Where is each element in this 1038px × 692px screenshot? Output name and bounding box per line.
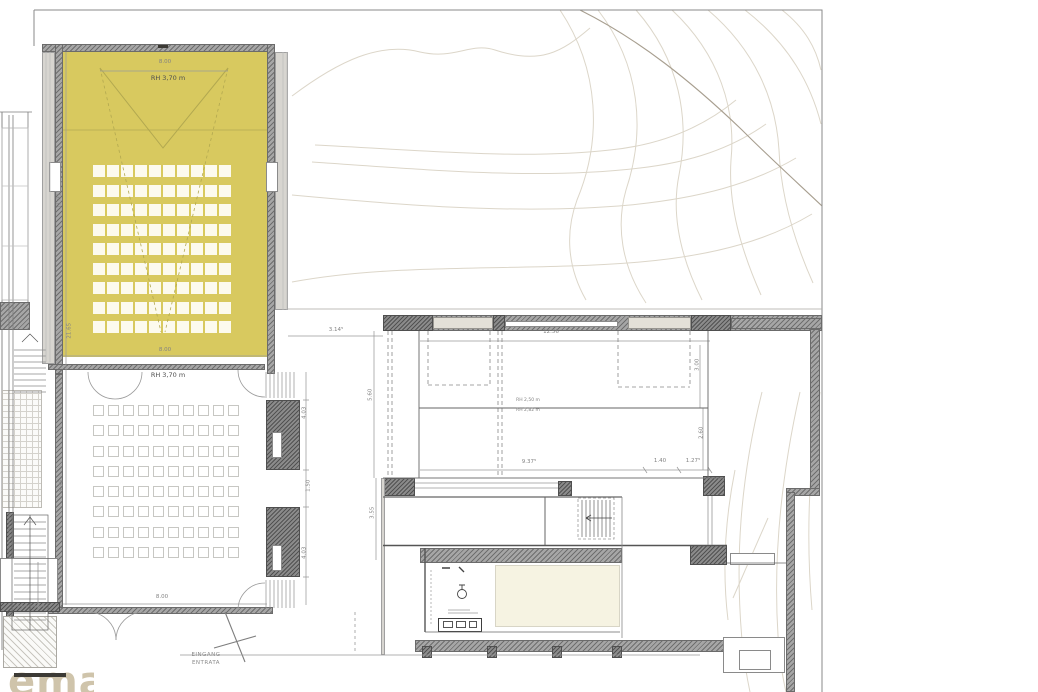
dim-annex-left-top: 3.14⁵ bbox=[322, 328, 350, 334]
seat bbox=[191, 263, 203, 275]
seat bbox=[135, 321, 147, 333]
service-se-block bbox=[690, 545, 727, 565]
seat bbox=[93, 321, 105, 333]
seat bbox=[191, 165, 203, 177]
seat bbox=[153, 405, 164, 416]
rh-annex-line2: RH 2,82 m bbox=[505, 409, 551, 414]
seat bbox=[219, 204, 231, 216]
dim-annex-top: 12.56 bbox=[535, 330, 567, 336]
dim-lower-left: 9.36 bbox=[59, 471, 65, 501]
dim-shaft-mid: 1.50 bbox=[306, 473, 312, 499]
seat bbox=[107, 282, 119, 294]
seat bbox=[121, 263, 133, 275]
seat bbox=[191, 321, 203, 333]
service-room-cream bbox=[495, 565, 620, 627]
seat bbox=[191, 243, 203, 255]
seat bbox=[123, 506, 134, 517]
contour-line-major bbox=[580, 10, 822, 206]
seat bbox=[135, 224, 147, 236]
seat bbox=[168, 506, 179, 517]
seat bbox=[153, 506, 164, 517]
seat bbox=[149, 204, 161, 216]
seat bbox=[219, 165, 231, 177]
left-wing-landing-wall bbox=[0, 302, 30, 330]
seat bbox=[191, 185, 203, 197]
seat bbox=[107, 204, 119, 216]
seat bbox=[219, 321, 231, 333]
seat bbox=[177, 243, 189, 255]
seat bbox=[135, 165, 147, 177]
seat bbox=[205, 302, 217, 314]
seat bbox=[93, 282, 105, 294]
lower-hall-seats bbox=[93, 405, 239, 558]
seat bbox=[198, 425, 209, 436]
seat bbox=[228, 446, 239, 457]
seat bbox=[198, 446, 209, 457]
seat bbox=[135, 243, 147, 255]
seat bbox=[108, 547, 119, 558]
seat bbox=[163, 185, 175, 197]
seat bbox=[183, 506, 194, 517]
seat bbox=[219, 263, 231, 275]
service-south-wall bbox=[415, 640, 725, 652]
dim-annex-bottom-left: 9.37⁵ bbox=[513, 460, 545, 466]
logo-fine-print bbox=[14, 673, 66, 677]
seat bbox=[205, 224, 217, 236]
retaining-wall bbox=[786, 492, 795, 692]
seat bbox=[183, 547, 194, 558]
lightwell-slot bbox=[730, 553, 775, 565]
seat bbox=[213, 547, 224, 558]
seat bbox=[219, 224, 231, 236]
site-wall-top bbox=[731, 318, 822, 329]
seat bbox=[121, 165, 133, 177]
seat bbox=[123, 527, 134, 538]
pilaster-1 bbox=[422, 646, 432, 658]
seat bbox=[93, 527, 104, 538]
seat bbox=[198, 486, 209, 497]
rh-label-lower: RH 3,70 m bbox=[140, 372, 196, 379]
seat bbox=[123, 486, 134, 497]
seat bbox=[219, 282, 231, 294]
rh-annex-line1: RH 2,50 m bbox=[505, 399, 551, 404]
seat bbox=[177, 321, 189, 333]
seat bbox=[149, 263, 161, 275]
seat bbox=[135, 282, 147, 294]
seat bbox=[149, 243, 161, 255]
seat bbox=[168, 405, 179, 416]
pilaster-2 bbox=[487, 646, 497, 658]
seat bbox=[108, 466, 119, 477]
seat bbox=[121, 224, 133, 236]
seat bbox=[93, 224, 105, 236]
annex-wall-seg2 bbox=[493, 315, 505, 331]
seat bbox=[121, 185, 133, 197]
seat bbox=[107, 185, 119, 197]
seat bbox=[149, 302, 161, 314]
seat bbox=[163, 165, 175, 177]
seat bbox=[177, 282, 189, 294]
seat bbox=[183, 425, 194, 436]
seat bbox=[108, 527, 119, 538]
seat bbox=[93, 243, 105, 255]
seat bbox=[121, 243, 133, 255]
roof-dashed-lines bbox=[388, 331, 690, 478]
pilaster-4 bbox=[612, 646, 622, 658]
wall-divider-halls bbox=[48, 364, 265, 370]
seat bbox=[138, 547, 149, 558]
seat bbox=[121, 321, 133, 333]
seat bbox=[163, 302, 175, 314]
seat bbox=[107, 321, 119, 333]
seat bbox=[198, 466, 209, 477]
seat bbox=[93, 302, 105, 314]
seat bbox=[205, 321, 217, 333]
seat bbox=[198, 527, 209, 538]
service-hatched-wall bbox=[420, 548, 622, 563]
ema-logo: ema bbox=[8, 666, 94, 692]
seat bbox=[149, 224, 161, 236]
seat bbox=[228, 405, 239, 416]
seat bbox=[138, 405, 149, 416]
seat bbox=[107, 243, 119, 255]
annex-wall-seg3 bbox=[691, 315, 731, 331]
seat bbox=[108, 405, 119, 416]
seat bbox=[93, 425, 104, 436]
seat bbox=[108, 446, 119, 457]
seat bbox=[183, 466, 194, 477]
seat bbox=[228, 547, 239, 558]
entrance-line2: ENTRATA bbox=[182, 659, 230, 667]
seat bbox=[123, 405, 134, 416]
dim-upper-bottom: 8.00 bbox=[150, 348, 180, 354]
wall-top-marker bbox=[158, 45, 168, 48]
dim-lower-bottom: 8.00 bbox=[147, 595, 177, 601]
seat bbox=[93, 405, 104, 416]
seat bbox=[168, 486, 179, 497]
dim-annex-left-upper: 5.60 bbox=[368, 382, 374, 408]
seat bbox=[123, 547, 134, 558]
seat bbox=[138, 446, 149, 457]
dim-shaft-bottom: 4.03 bbox=[302, 540, 308, 566]
seat bbox=[228, 466, 239, 477]
seat bbox=[108, 425, 119, 436]
seat bbox=[93, 263, 105, 275]
seat bbox=[213, 466, 224, 477]
seat bbox=[177, 263, 189, 275]
annex-interior-lines bbox=[383, 331, 725, 478]
annex-wall-seg1 bbox=[383, 315, 433, 331]
seat bbox=[191, 302, 203, 314]
lamp-icon bbox=[458, 585, 467, 599]
seat bbox=[135, 204, 147, 216]
upper-hall-seats bbox=[93, 165, 231, 333]
seat bbox=[163, 204, 175, 216]
wall-bottom bbox=[48, 607, 273, 614]
seat bbox=[183, 446, 194, 457]
seat bbox=[219, 185, 231, 197]
site-wall-right bbox=[810, 329, 820, 492]
seat bbox=[191, 204, 203, 216]
seat bbox=[138, 506, 149, 517]
wall-outer-left bbox=[42, 52, 55, 364]
seat bbox=[168, 446, 179, 457]
seat bbox=[123, 446, 134, 457]
seat bbox=[107, 165, 119, 177]
door-slot-right bbox=[266, 162, 278, 192]
seat bbox=[177, 302, 189, 314]
seat bbox=[149, 165, 161, 177]
seat bbox=[149, 185, 161, 197]
left-lower-hatch-floor bbox=[3, 616, 57, 668]
seat bbox=[153, 466, 164, 477]
seat bbox=[168, 425, 179, 436]
seat bbox=[93, 185, 105, 197]
seat bbox=[168, 466, 179, 477]
seat bbox=[149, 282, 161, 294]
seat bbox=[205, 185, 217, 197]
pilaster-3 bbox=[552, 646, 562, 658]
seat bbox=[213, 425, 224, 436]
floor-plan: 8.00 RH 3,70 m 8.00 11.91 21.65 RH 3,70 … bbox=[0, 0, 1038, 692]
seat bbox=[168, 527, 179, 538]
seat bbox=[93, 506, 104, 517]
seat bbox=[213, 527, 224, 538]
dim-upper-top: 8.00 bbox=[150, 60, 180, 66]
seat bbox=[163, 263, 175, 275]
seat bbox=[183, 405, 194, 416]
seat bbox=[123, 466, 134, 477]
seat bbox=[93, 466, 104, 477]
seat bbox=[177, 165, 189, 177]
seat bbox=[205, 165, 217, 177]
service-west-wall bbox=[381, 478, 385, 655]
seat bbox=[191, 224, 203, 236]
seat bbox=[198, 506, 209, 517]
seat bbox=[93, 486, 104, 497]
service-wall-block-left bbox=[383, 478, 415, 496]
seat bbox=[135, 185, 147, 197]
seat bbox=[153, 527, 164, 538]
dim-annex-right-lower: 2.60 bbox=[699, 420, 705, 446]
wall-right-upper bbox=[267, 44, 275, 374]
seat bbox=[168, 547, 179, 558]
entrance-label: EINGANG ENTRATA bbox=[182, 651, 230, 668]
seat bbox=[108, 506, 119, 517]
seat bbox=[135, 302, 147, 314]
seat bbox=[183, 527, 194, 538]
seat bbox=[153, 446, 164, 457]
seat bbox=[219, 243, 231, 255]
seat bbox=[213, 486, 224, 497]
seat bbox=[93, 446, 104, 457]
kitchen-counter bbox=[438, 618, 482, 632]
seat bbox=[213, 506, 224, 517]
seat bbox=[138, 527, 149, 538]
dim-upper-left: 11.91 bbox=[57, 186, 63, 216]
dim-annex-left-lower: 3.55 bbox=[370, 500, 376, 526]
seat bbox=[153, 547, 164, 558]
bottom-right-inner bbox=[739, 650, 771, 670]
shaft-door-lower bbox=[272, 545, 282, 571]
seat bbox=[107, 302, 119, 314]
seat bbox=[198, 405, 209, 416]
seat bbox=[163, 321, 175, 333]
seat bbox=[228, 425, 239, 436]
seat bbox=[163, 243, 175, 255]
seat bbox=[93, 165, 105, 177]
seat bbox=[228, 506, 239, 517]
service-stair bbox=[578, 498, 614, 539]
rh-label-upper: RH 3,70 m bbox=[140, 75, 196, 82]
seat bbox=[228, 527, 239, 538]
annex-window-left bbox=[433, 317, 493, 329]
service-ne-block bbox=[703, 476, 725, 496]
seat bbox=[153, 425, 164, 436]
seat bbox=[138, 425, 149, 436]
seat bbox=[219, 302, 231, 314]
seat bbox=[163, 224, 175, 236]
annex-window-right bbox=[628, 317, 691, 329]
seat bbox=[205, 204, 217, 216]
seat bbox=[191, 282, 203, 294]
seat bbox=[177, 224, 189, 236]
dim-annex-bottom-right: 1.27⁵ bbox=[679, 459, 707, 465]
seat bbox=[107, 263, 119, 275]
dim-shaft-top: 4.03 bbox=[302, 400, 308, 426]
seat bbox=[135, 263, 147, 275]
seat bbox=[121, 204, 133, 216]
dim-left-outer: 21.65 bbox=[67, 316, 73, 346]
seat bbox=[205, 282, 217, 294]
seat bbox=[228, 486, 239, 497]
seat bbox=[213, 446, 224, 457]
dim-annex-bottom-mid: 1.40 bbox=[648, 459, 672, 465]
seat bbox=[121, 282, 133, 294]
seat bbox=[149, 321, 161, 333]
seat bbox=[107, 224, 119, 236]
left-lower-wall bbox=[0, 602, 60, 612]
entrance-line1: EINGANG bbox=[182, 651, 230, 659]
seat bbox=[205, 263, 217, 275]
service-wall-block-mid bbox=[558, 481, 572, 496]
seat bbox=[138, 466, 149, 477]
seat bbox=[198, 547, 209, 558]
left-wing-room-hatched bbox=[2, 390, 42, 508]
seat bbox=[93, 204, 105, 216]
logo-text: ema bbox=[8, 666, 94, 692]
seat bbox=[183, 486, 194, 497]
shaft-door-upper bbox=[272, 432, 282, 458]
seat bbox=[177, 185, 189, 197]
seat bbox=[121, 302, 133, 314]
seat bbox=[213, 405, 224, 416]
seat bbox=[163, 282, 175, 294]
seat bbox=[177, 204, 189, 216]
seat bbox=[205, 243, 217, 255]
dim-annex-right-upper: 3.00 bbox=[695, 352, 701, 378]
seat bbox=[153, 486, 164, 497]
seat bbox=[123, 425, 134, 436]
seat bbox=[93, 547, 104, 558]
seat bbox=[108, 486, 119, 497]
annex-window-mid-strip bbox=[505, 321, 618, 327]
seat bbox=[138, 486, 149, 497]
